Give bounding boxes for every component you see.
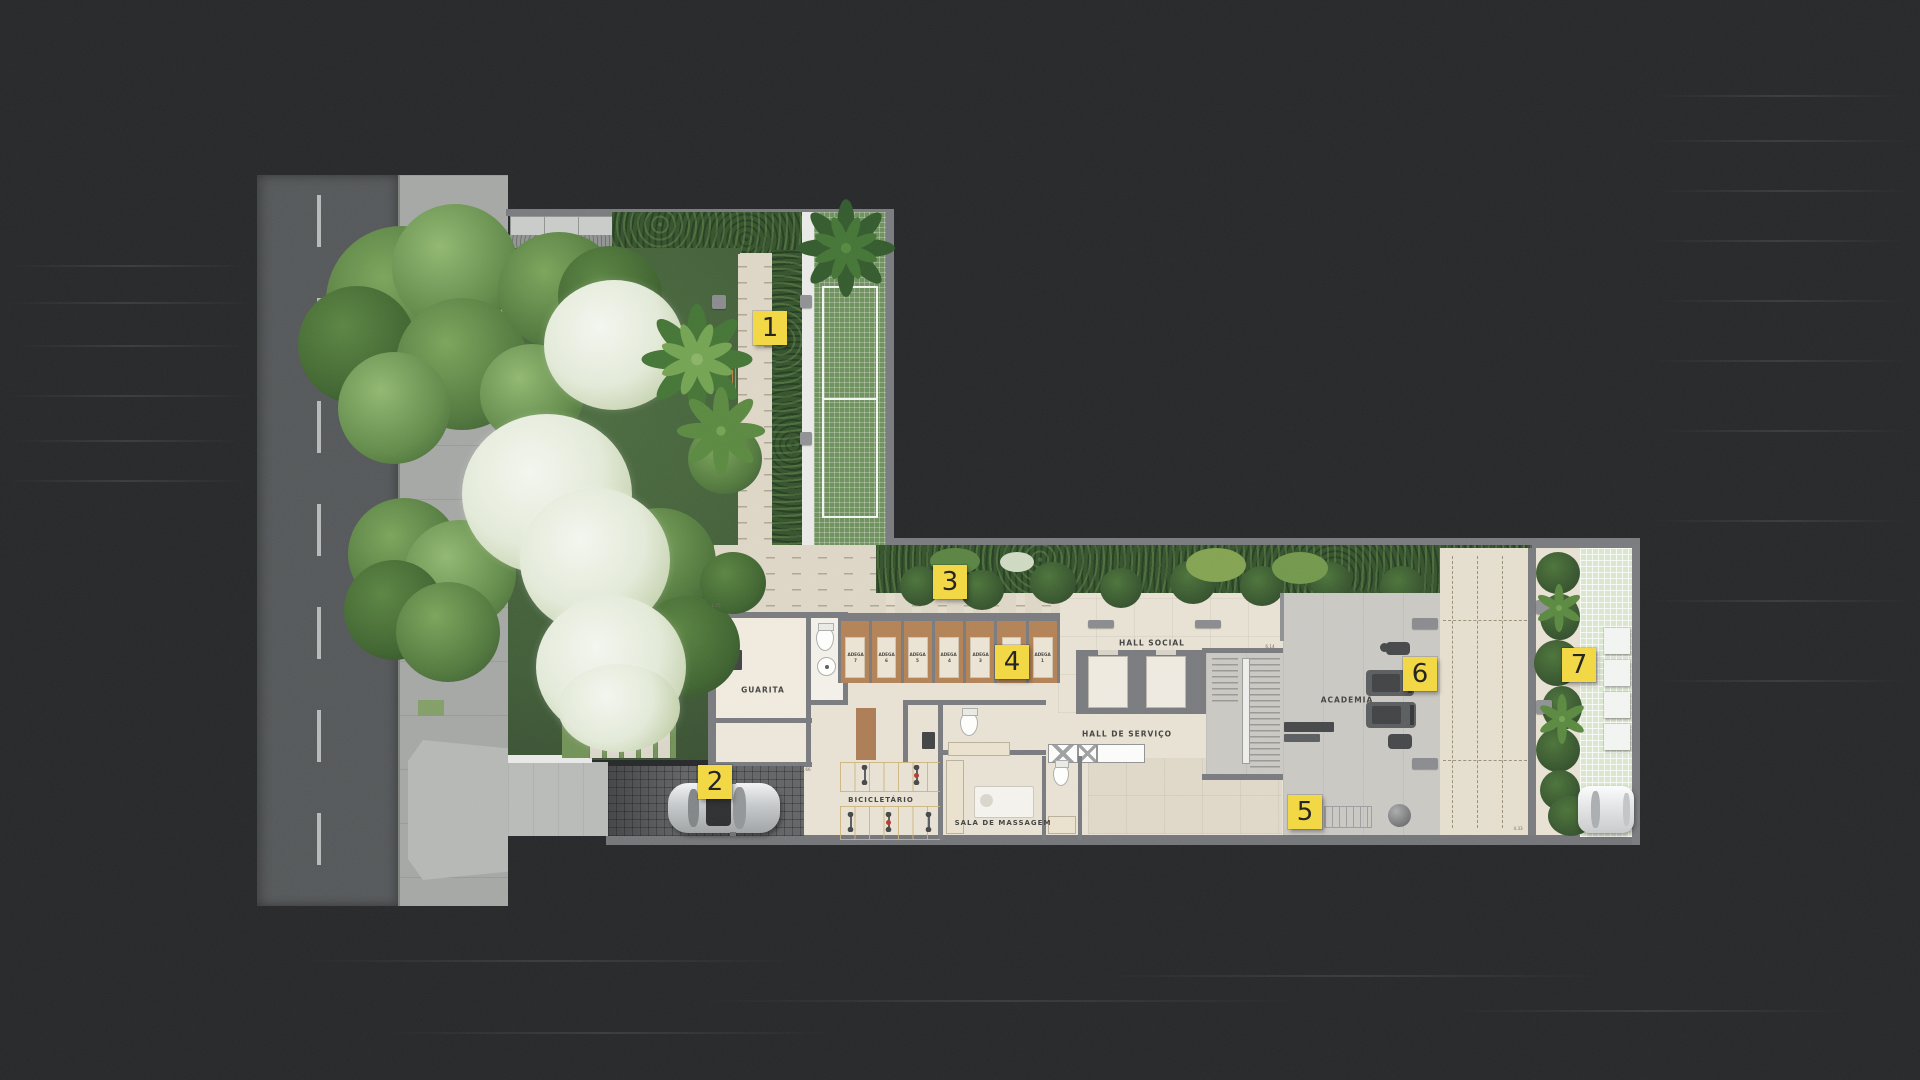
- multi-gym: [1284, 722, 1334, 732]
- adega-cell: ADEGA6: [869, 621, 900, 683]
- stall-dash-line: [1443, 760, 1527, 761]
- wc-bottom-wall: [806, 700, 848, 705]
- walkway-block: [800, 432, 812, 445]
- wood-door: [856, 708, 876, 760]
- room-label-sala-massagem: SALA DE MASSAGEM: [955, 819, 1052, 827]
- elevator-cab: [1088, 656, 1128, 708]
- main-wing-bottom-wall: [606, 835, 1640, 845]
- tree-blob: [700, 552, 766, 614]
- asphalt-streak: [1655, 95, 1905, 97]
- hedge-accent: [1272, 552, 1328, 584]
- hedge-accent: [1186, 548, 1246, 582]
- equipment-box: [1604, 628, 1630, 654]
- adega-cell: ADEGA1: [1026, 621, 1060, 683]
- asphalt-streak: [6, 480, 246, 482]
- adega-number: 1: [1041, 659, 1044, 663]
- adega-cell: ADEGA4: [932, 621, 963, 683]
- stall-dash-line: [1502, 556, 1503, 828]
- dimension-label: 2.75: [711, 604, 720, 609]
- asphalt-streak: [1660, 190, 1910, 192]
- tennis-net-line: [822, 398, 878, 400]
- adega-door: ADEGA3: [970, 637, 990, 678]
- tree-blob: [396, 582, 500, 682]
- parking-pavers: [1440, 548, 1528, 835]
- legend-marker-5[interactable]: 5: [1288, 795, 1322, 829]
- asphalt-streak: [1100, 975, 1600, 977]
- adega-label: ADEGA: [878, 653, 894, 657]
- wc2-left-wall: [1042, 756, 1046, 840]
- massage-pillow: [980, 794, 993, 807]
- hedge-blob: [1100, 568, 1142, 608]
- elevator-cab: [1146, 656, 1186, 708]
- adega-cell: ADEGA5: [901, 621, 932, 683]
- elevator-door: [1098, 650, 1118, 655]
- exercise-bike-wheel: [1380, 643, 1389, 652]
- asphalt-streak: [1655, 520, 1907, 522]
- stall-dash-line: [1477, 556, 1478, 828]
- adega-door: ADEGA4: [939, 637, 959, 678]
- bicycle: [924, 812, 933, 832]
- stall-dash-line: [1443, 620, 1527, 621]
- legend-marker-2[interactable]: 2: [698, 765, 732, 799]
- palm-tree: [1536, 692, 1588, 744]
- exercise-bike: [1386, 642, 1410, 655]
- driveway-ramp: [408, 740, 508, 880]
- equipment-box: [1604, 724, 1630, 750]
- wc2-right-wall: [1078, 756, 1082, 840]
- asphalt-streak: [1660, 430, 1908, 432]
- palm-tree: [1534, 582, 1584, 632]
- gym-bench: [1412, 618, 1438, 629]
- asphalt-streak: [12, 440, 242, 442]
- legend-marker-1[interactable]: 1: [753, 311, 787, 345]
- multi-gym: [1284, 734, 1320, 742]
- vestibule-floor: [716, 723, 806, 762]
- storage-closet: [1097, 744, 1145, 763]
- room-desk: [922, 732, 935, 749]
- equipment-box: [1604, 692, 1630, 718]
- driveway-pavement: [508, 762, 608, 836]
- asphalt-streak: [1650, 140, 1910, 142]
- adega-number: 4: [948, 659, 951, 663]
- treadmill: [1366, 702, 1416, 728]
- room-label-hall-social: HALL SOCIAL: [1119, 639, 1185, 648]
- adega-number: 3: [979, 659, 982, 663]
- asphalt-streak: [700, 1000, 1300, 1002]
- hall-bench: [1088, 620, 1114, 628]
- wc-cabinet: [1048, 816, 1076, 834]
- adega-door: ADEGA6: [877, 637, 897, 678]
- room-divider-wall: [903, 700, 908, 762]
- adega-door: ADEGA1: [1033, 637, 1053, 678]
- gym-bench: [1412, 758, 1438, 769]
- legend-marker-4[interactable]: 4: [995, 645, 1029, 679]
- tennis-court-lines: [822, 286, 878, 518]
- bicycle: [846, 812, 855, 832]
- stair-bottom-wall: [1202, 774, 1292, 780]
- adega-label: ADEGA: [1035, 653, 1051, 657]
- asphalt-streak: [1660, 680, 1905, 682]
- stair-flight: [1212, 658, 1238, 704]
- agility-ladder: [1324, 806, 1372, 828]
- equipment-box: [1604, 660, 1630, 686]
- room-label-guarita: GUARITA: [741, 686, 785, 695]
- adega-number: 6: [885, 659, 888, 663]
- adega-label: ADEGA: [941, 653, 957, 657]
- site-plan-render: GUARITA ADEGA7 ADEGA6 ADEGA5 ADEGA4 ADEG…: [0, 0, 1920, 1080]
- asphalt-streak: [1650, 600, 1908, 602]
- dimension-label: 5.66: [801, 768, 810, 773]
- asphalt-streak: [10, 265, 250, 267]
- bicycle: [884, 812, 893, 832]
- adega-label: ADEGA: [972, 653, 988, 657]
- asphalt-streak: [1658, 300, 1908, 302]
- rooms-top-wall: [903, 700, 1046, 705]
- adega-cell: ADEGA3: [963, 621, 994, 683]
- grass-patch: [418, 700, 444, 716]
- legend-marker-7[interactable]: 7: [1562, 648, 1596, 682]
- exercise-bike: [1388, 734, 1412, 749]
- flowering-tree: [558, 664, 680, 752]
- adega-number: 5: [916, 659, 919, 663]
- sink: [817, 657, 836, 676]
- room-label-academia: ACADEMIA: [1321, 696, 1374, 705]
- stair-top-wall: [1202, 648, 1292, 653]
- stair-rail: [1242, 658, 1250, 764]
- bike-stalls-top: [840, 762, 940, 792]
- adega-cell: ADEGA7: [838, 621, 869, 683]
- adega-door: ADEGA7: [845, 637, 865, 678]
- hall-bench: [1195, 620, 1221, 628]
- dimension-label: 6.14: [1265, 645, 1274, 650]
- adega-number: 7: [854, 659, 857, 663]
- asphalt-streak: [300, 960, 800, 962]
- asphalt-streak: [380, 1032, 830, 1034]
- shelf: [948, 742, 1010, 756]
- asphalt-streak: [5, 302, 255, 304]
- exercise-ball: [1388, 804, 1411, 827]
- white-car: [1578, 786, 1634, 833]
- asphalt-streak: [8, 395, 253, 397]
- bicycle: [860, 765, 869, 785]
- tree-blob: [338, 352, 450, 464]
- stall-dash-line: [1452, 556, 1453, 828]
- dimension-label: 4.33: [1513, 827, 1522, 832]
- academia-wall-stub: [1280, 593, 1284, 641]
- asphalt-streak: [1650, 240, 1905, 242]
- elevator-door: [1156, 650, 1176, 655]
- asphalt-streak: [1450, 1010, 1850, 1012]
- room-label-hall-servico: HALL DE SERVIÇO: [1082, 730, 1172, 739]
- palm-tree: [792, 194, 900, 298]
- legend-marker-3[interactable]: 3: [933, 565, 967, 599]
- palm-tree: [672, 382, 770, 476]
- room-label-bicicletario: BICICLETÁRIO: [846, 796, 916, 804]
- adega-label: ADEGA: [910, 653, 926, 657]
- bicycle: [912, 765, 921, 785]
- hedge-blob: [1030, 562, 1076, 604]
- guarita-mid-wall: [712, 718, 812, 723]
- hedge-flower-accent: [1000, 552, 1034, 572]
- asphalt-streak: [1652, 360, 1908, 362]
- legend-marker-6[interactable]: 6: [1403, 657, 1437, 691]
- adega-label: ADEGA: [847, 653, 863, 657]
- stair-flight: [1250, 658, 1280, 772]
- adega-door: ADEGA5: [908, 637, 928, 678]
- asphalt-streak: [15, 345, 250, 347]
